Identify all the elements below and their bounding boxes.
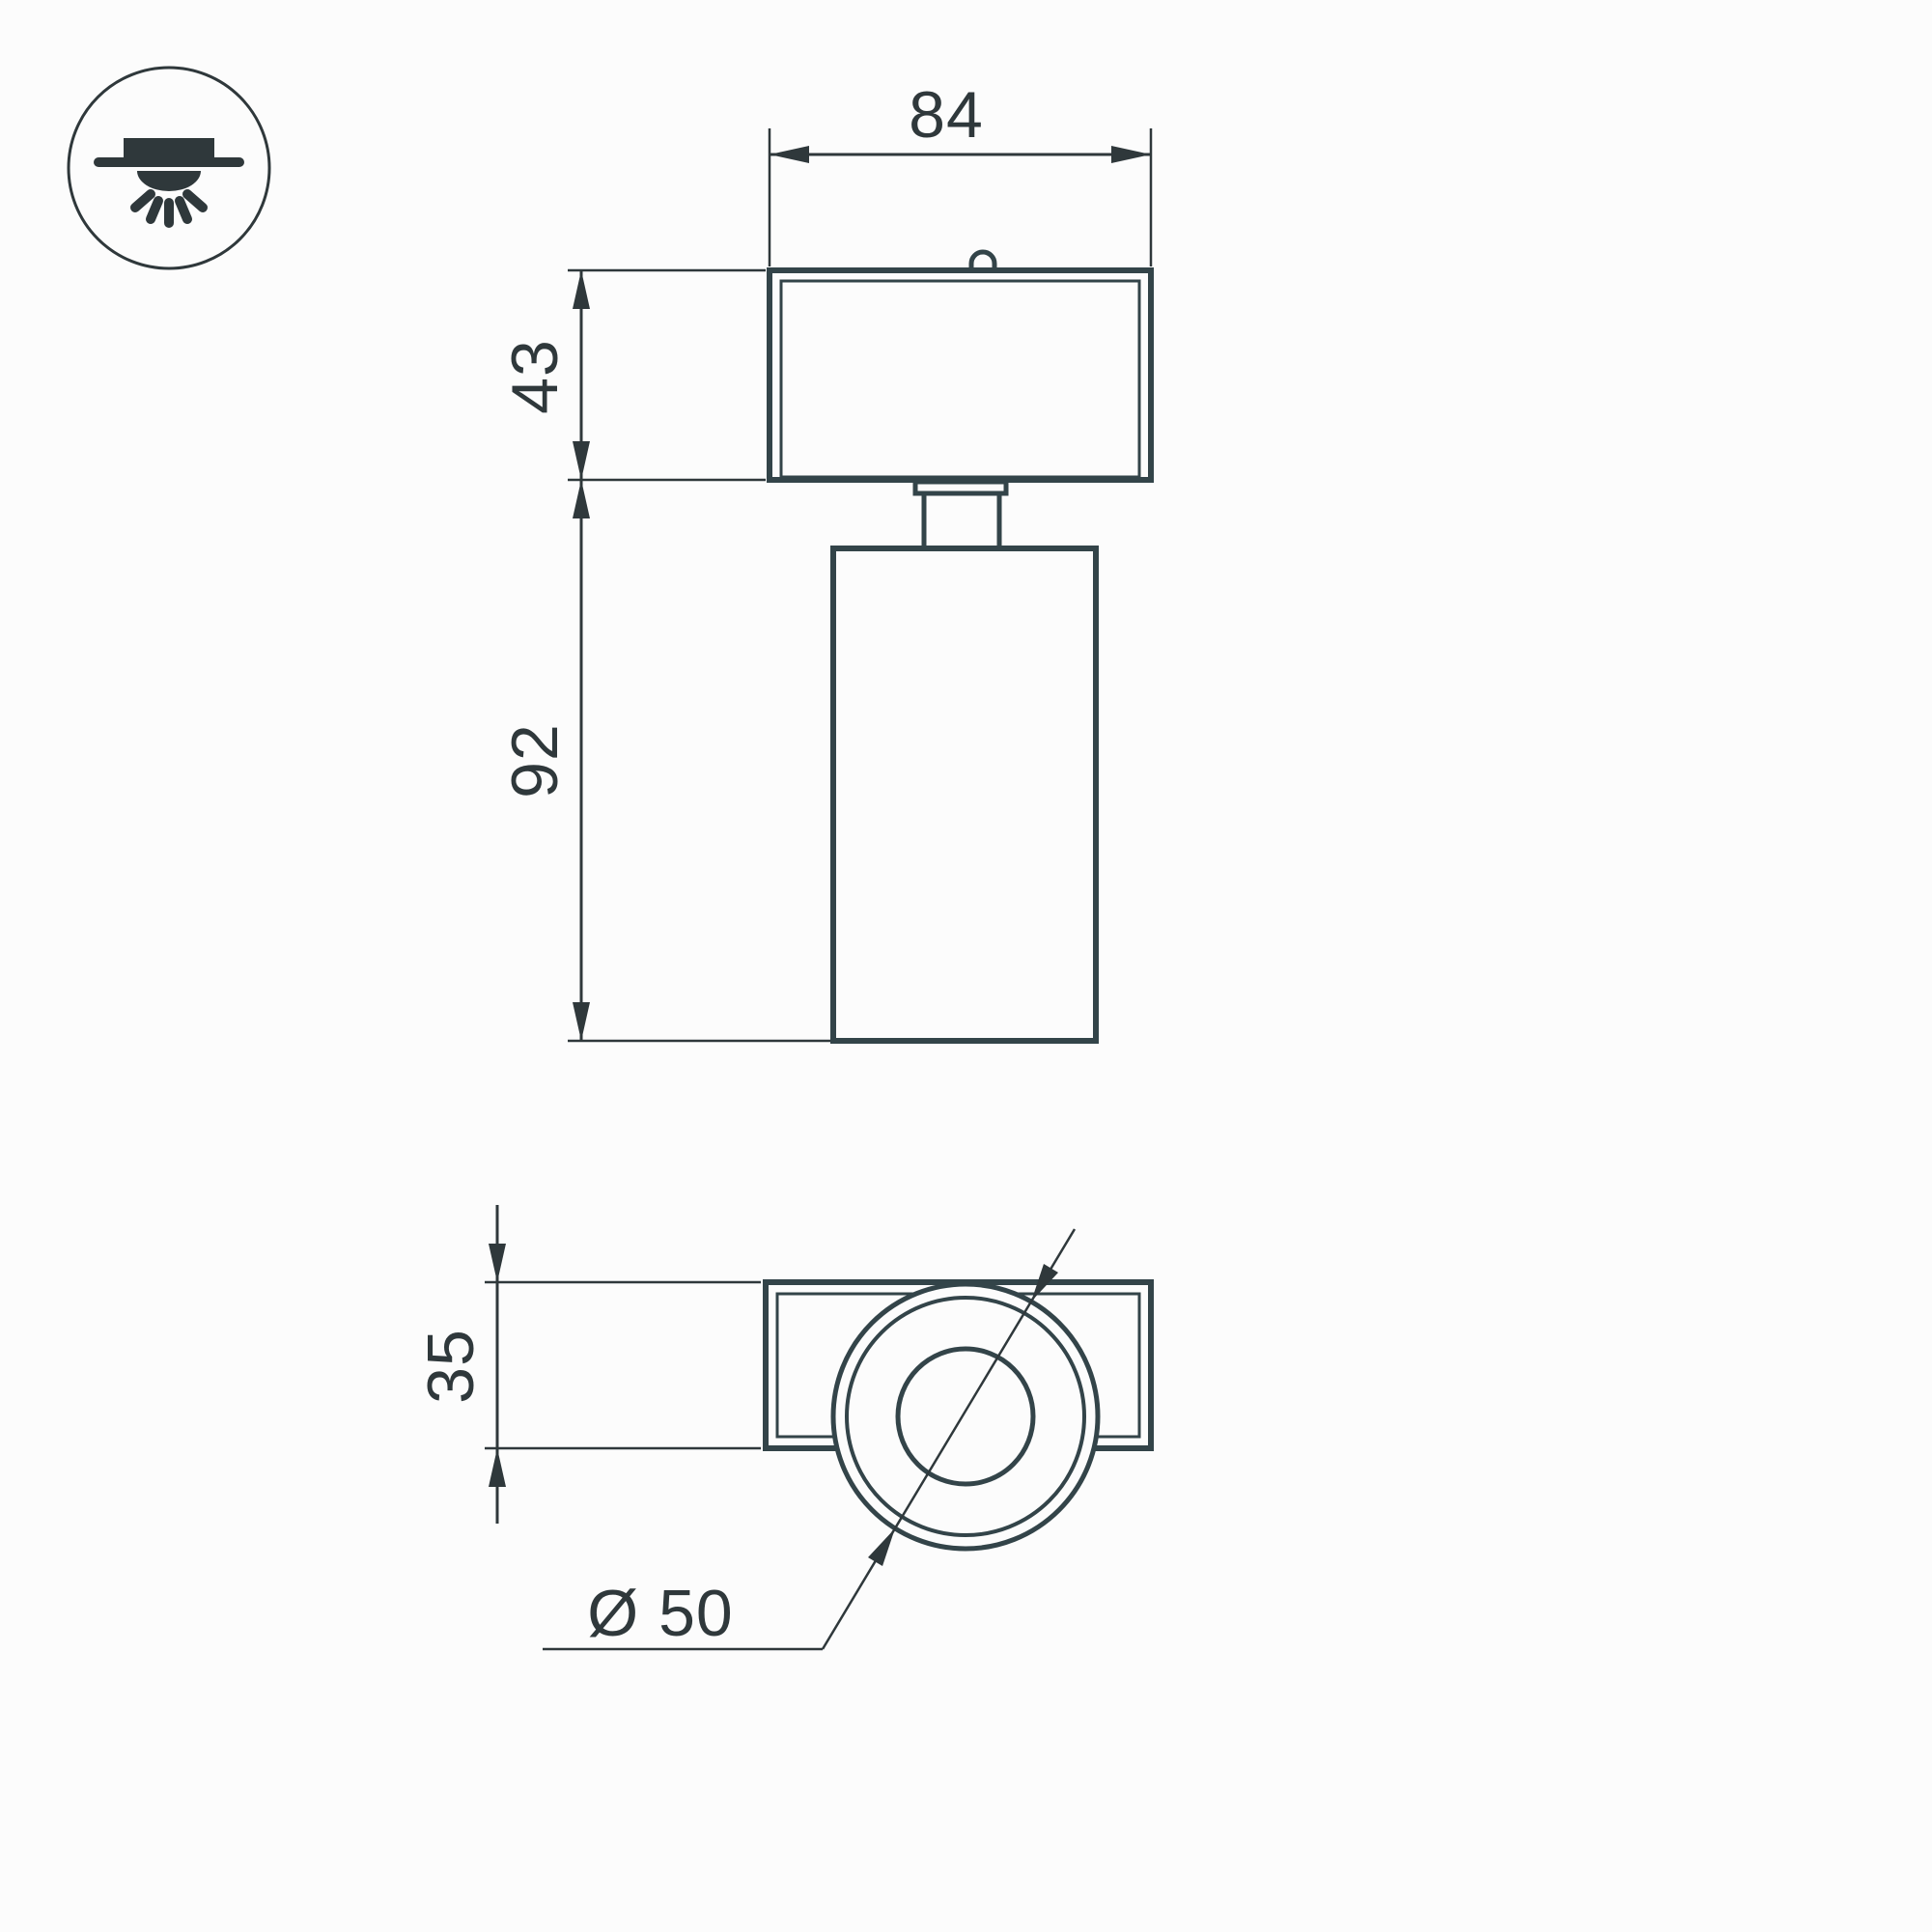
spot-cylinder	[833, 548, 1096, 1041]
dim-head-height: 43	[498, 270, 766, 1041]
mounting-box-outline	[770, 270, 1151, 480]
icon-circle	[69, 68, 269, 268]
swivel-neck	[924, 493, 999, 548]
dimension-drawing-canvas: 84 43 92	[0, 0, 1932, 1932]
width-dim-label: 84	[909, 78, 984, 152]
dim-body-height: 92	[498, 480, 830, 1041]
hanging-loop	[971, 252, 994, 269]
arrow-up	[573, 270, 590, 309]
mounting-box-inner	[781, 281, 1139, 477]
top-view: 35 Ø 50	[414, 1205, 1151, 1650]
front-view: 84 43 92	[498, 78, 1151, 1041]
mount-type-icon	[69, 68, 269, 268]
light-rays-icon	[135, 194, 203, 223]
drawing-page: 84 43 92	[0, 0, 1932, 1932]
arrow-down	[573, 1002, 590, 1041]
arrow-down	[489, 1244, 506, 1282]
diameter-dim-label: Ø 50	[587, 1577, 733, 1650]
arrow-up-right	[868, 1528, 895, 1566]
ceiling-line	[94, 157, 244, 167]
arrow-left	[770, 146, 809, 163]
depth-dim-label: 35	[414, 1329, 488, 1404]
head-height-dim-label: 43	[498, 339, 572, 414]
arrow-right	[1111, 146, 1151, 163]
lamp-dome	[137, 171, 201, 191]
arrow-up	[573, 480, 590, 518]
dim-width: 84	[770, 78, 1151, 266]
arrow-down	[573, 441, 590, 480]
body-height-dim-label: 92	[498, 723, 572, 798]
arrow-up	[489, 1448, 506, 1487]
dim-depth: 35	[414, 1205, 761, 1524]
